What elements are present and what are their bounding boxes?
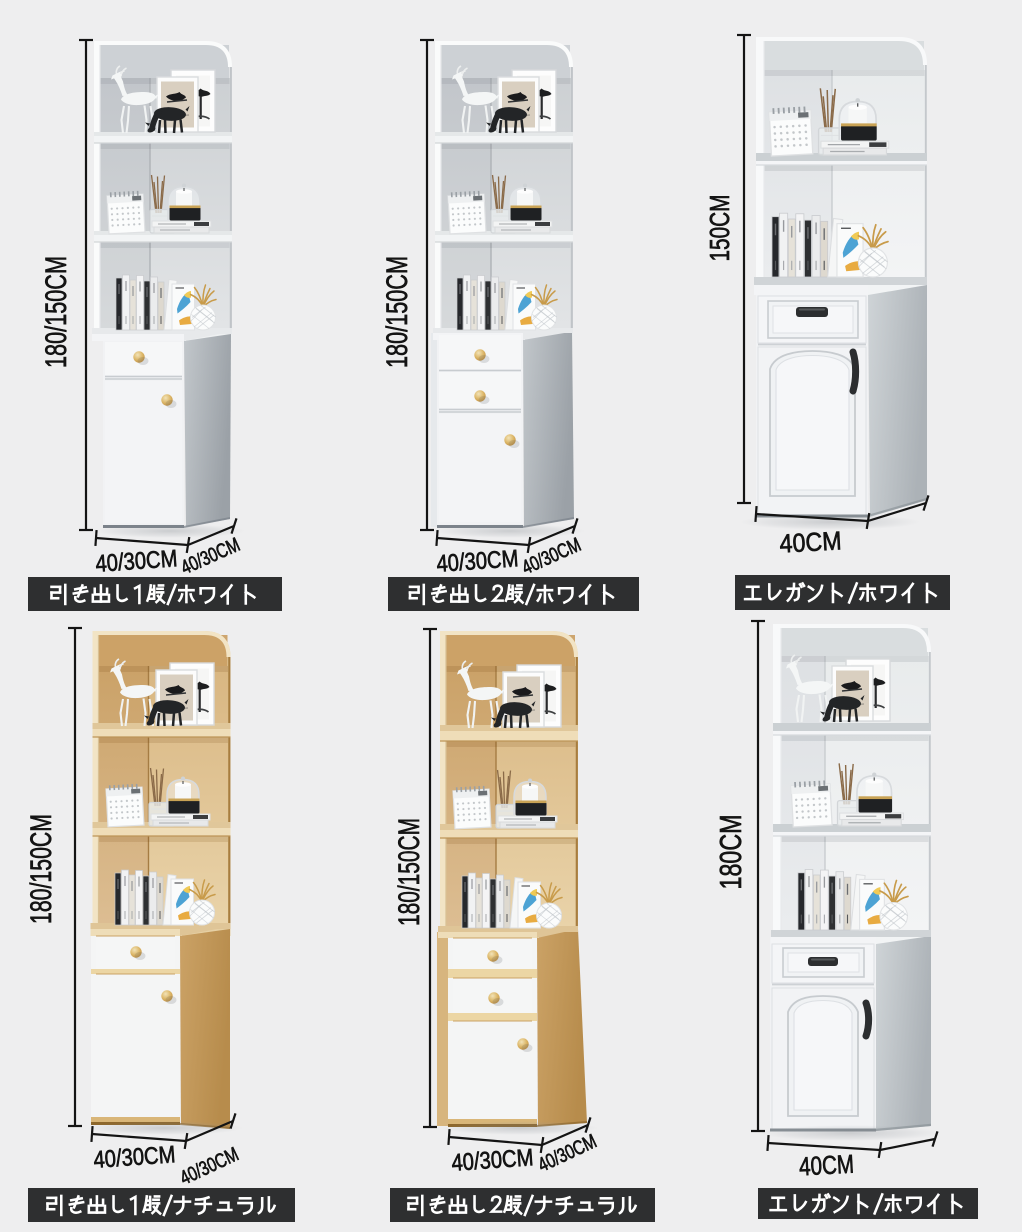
svg-text:180/150CM: 180/150CM [393,818,426,926]
svg-text:180CM: 180CM [713,815,748,890]
svg-text:40CM: 40CM [798,1149,854,1182]
svg-text:40/30CM: 40/30CM [95,545,179,578]
svg-text:180/150CM: 180/150CM [381,256,414,368]
svg-text:40/30CM: 40/30CM [451,1144,535,1177]
svg-text:150CM: 150CM [704,195,735,262]
svg-text:40/30CM: 40/30CM [93,1141,177,1174]
svg-text:180/150CM: 180/150CM [40,256,73,368]
svg-text:40CM: 40CM [779,525,842,558]
svg-text:180/150CM: 180/150CM [25,814,58,924]
svg-text:40/30CM: 40/30CM [436,545,520,578]
